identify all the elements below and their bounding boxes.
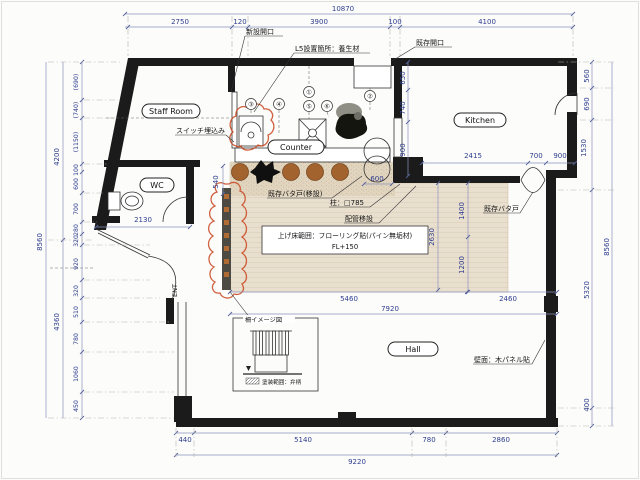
dim: 2750 (171, 18, 189, 26)
dim: 600 (370, 175, 383, 183)
dim-top-overall: 10870 (332, 5, 354, 13)
label-existing-swing-door: 既存バタ戸 (484, 204, 519, 213)
wall-kitchen-bottom (423, 176, 520, 183)
balloon-3-label: ③ (248, 101, 254, 109)
wall-wc-bottom (92, 216, 120, 223)
dim: (690) (73, 74, 80, 91)
dim: 4200 (53, 148, 61, 166)
dim: 4360 (53, 313, 61, 331)
dim: 650 (399, 71, 407, 84)
dim: 5460 (340, 295, 358, 303)
label-new-opening: 新設開口 (246, 27, 274, 36)
balloon-4-label: ④ (276, 101, 282, 109)
label-swing-door-relocated: 既存バタ戸(移設) (268, 189, 323, 198)
label-column-note: 柱：□785 (330, 198, 364, 207)
dim: 320 (73, 285, 80, 297)
dim: 600 (73, 178, 80, 190)
dim: (740) (73, 102, 80, 119)
toilet (108, 192, 143, 210)
dim-left-overall: 8560 (36, 233, 44, 251)
dim: 280 (73, 224, 80, 236)
dim: 320 (73, 235, 80, 247)
dim: 120 (233, 18, 246, 26)
dim: (1150) (73, 132, 80, 153)
entrance-door-leaf (166, 298, 174, 324)
label-pipe-note: 配管移設 (345, 214, 373, 223)
hatch-swatch (246, 378, 259, 384)
dim: 5320 (583, 281, 591, 299)
dim: 920 (73, 258, 80, 270)
dim: 4100 (478, 18, 496, 26)
balloon-2-label: ② (367, 93, 373, 101)
fence-inset-caption: 塗装範囲：弁柄 (262, 378, 302, 386)
staff-room-label: Staff Room (149, 107, 193, 116)
dim: 450 (73, 400, 80, 412)
raised-floor-note: 上げ床範囲：フローリング貼(パイン無垢材) FL+150 (262, 226, 428, 254)
dim: 560 (583, 69, 591, 82)
balloon-6-label: ⑥ (324, 103, 330, 111)
fence-strip (222, 188, 231, 290)
wall-wc-right (186, 167, 194, 224)
hall-label: Hall (405, 345, 420, 354)
dim: 1060 (73, 366, 80, 382)
dim: 5140 (294, 436, 312, 444)
dim: 100 (388, 18, 401, 26)
wc-label: WC (150, 181, 164, 190)
dim: 510 (73, 306, 80, 318)
floor-plan-sheet: 10870 2750 120 3900 100 4100 440 5140 78… (0, 0, 640, 480)
dim: 2630 (428, 228, 436, 246)
label-l5-note: L5設置箇所：養生材 (295, 44, 359, 53)
dim: 1400 (458, 202, 466, 220)
dim: 7920 (381, 305, 399, 313)
label-existing-opening: 既存開口 (416, 38, 444, 47)
dim: 900 (399, 143, 407, 156)
dim: 690 (583, 97, 591, 110)
dim: 2130 (134, 216, 152, 224)
dim: 780 (73, 333, 80, 345)
dim-bottom-overall: 9220 (348, 458, 366, 466)
raised-floor-level-text: FL+150 (332, 243, 358, 251)
label-entrance: ENT (171, 284, 179, 297)
dim: 2415 (464, 152, 482, 160)
dim: 2460 (499, 295, 517, 303)
dim-right-overall: 8560 (603, 238, 611, 256)
hand-wash-sink (239, 116, 263, 146)
label-wall-finish: 壁面：木パネル貼 (474, 355, 530, 364)
kitchen-label: Kitchen (465, 116, 495, 125)
dim: 780 (422, 436, 435, 444)
dim: 740 (399, 101, 407, 114)
dim: 3900 (310, 18, 328, 26)
raised-floor-note-text: 上げ床範囲：フローリング貼(パイン無垢材) (278, 231, 413, 240)
dim: 900 (553, 152, 566, 160)
wall-counter-stub (228, 58, 235, 92)
label-switch-note: スイッチ埋込み (176, 126, 225, 135)
dim: 700 (73, 203, 80, 215)
balloon-1-label: ① (306, 89, 312, 97)
dim: 100 (73, 164, 80, 176)
dim: 1200 (458, 256, 466, 274)
counter-label: Counter (280, 143, 313, 152)
dim: 400 (583, 398, 591, 411)
existing-opening-recess (354, 66, 391, 88)
dim: 540 (212, 175, 220, 188)
dim: 700 (529, 152, 542, 160)
dim: 440 (178, 436, 191, 444)
fence-inset-title: 柵イメージ図 (245, 316, 282, 324)
balloon-5-label: ⑤ (306, 103, 312, 111)
wall-staff-wc-divider (104, 160, 200, 167)
floor-plan-drawing: 10870 2750 120 3900 100 4100 440 5140 78… (0, 0, 640, 480)
dim: 2860 (492, 436, 510, 444)
counter-back-partition (232, 92, 237, 148)
dim: 1530 (580, 139, 588, 157)
